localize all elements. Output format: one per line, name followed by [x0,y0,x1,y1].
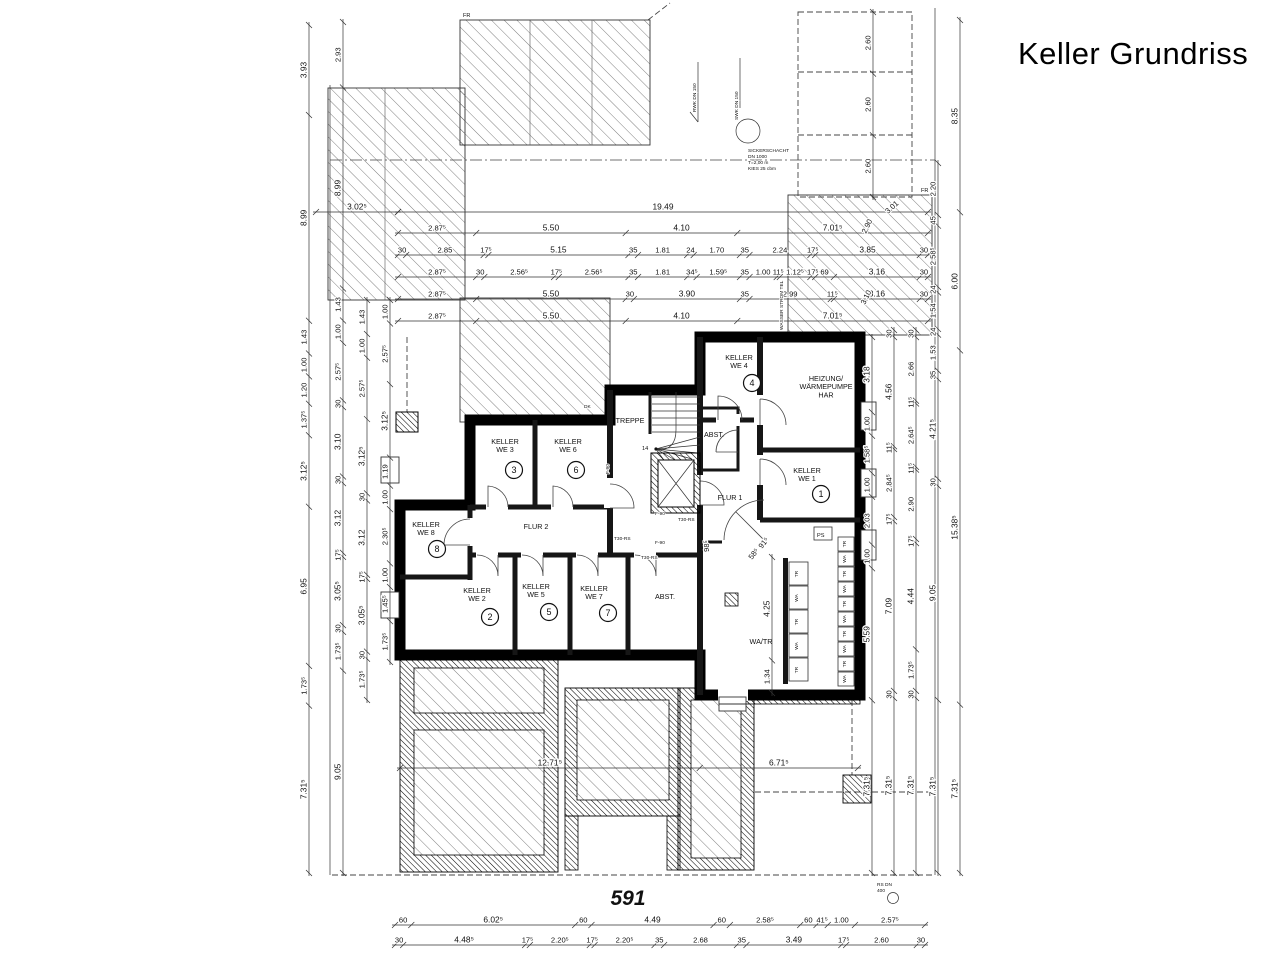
dim-value: 24 [929,285,938,293]
dim-value: 9.05 [928,584,938,601]
dim-chain-g1: 2.602.602.60 [864,9,877,200]
dim-chain-r3: 302.6611⁵2.64⁵11⁵2.9017⁵4.441.73⁵307.31⁵ [906,327,920,876]
dim-value: 4.48⁵ [454,935,474,945]
dim-chain-b1: 606.02⁵604.49602.58⁵6041⁵1.002.57⁵ [392,915,928,929]
room-name: WA/TR [750,637,773,646]
dim-value: 3.12⁵ [380,411,390,431]
dim-value: 17⁵ [358,571,367,583]
dim-value: 1.00 [334,324,343,339]
dim-value: 4.44 [906,588,916,605]
room-name: FLUR 1 [718,493,743,502]
dim-value: 1.00 [381,568,390,583]
dim-value: 2.87⁵ [428,290,446,299]
room-number: 8 [434,544,439,554]
dim-value: 5.15 [550,245,567,255]
floor-plan-page: Keller Grundriss [0,0,1280,960]
dim-value: 8.99 [299,209,309,226]
dim-value: 1.00 [358,339,367,354]
dim-value: 2.20⁵ [551,936,569,945]
dim-value: 6.95 [299,578,309,595]
dim-value: 3.05⁵ [357,605,367,625]
dim-value: 1.53 [929,345,938,360]
dim-value: 30 [885,690,894,698]
dim-value: 2.20 [929,182,938,197]
dim-value: 2.90 [907,497,916,512]
dim-value: 30 [626,290,634,299]
dim-value: 17⁵ [838,936,850,945]
dim-value: 3.02⁵ [347,202,367,212]
drawing-title: Keller Grundriss [1018,36,1248,72]
soakaway-note-3: T=2,00 m [748,160,768,166]
dim-value: 1.45⁵ [381,595,390,613]
dim-value: 30 [920,246,928,255]
dim-value: 4.10 [673,311,690,321]
dim-value: 11⁵ [773,268,784,277]
room-label-watr: WA/TR [750,637,773,646]
room-number: 4 [749,378,754,388]
dim-value: 7.31⁵ [906,776,916,796]
f90-label-1: F-90 [655,511,665,517]
dim-value: 4.21⁵ [928,419,938,439]
room-name: FLUR 2 [524,522,549,531]
dim-value: 1.00 [863,478,872,493]
dim-value: 69 [820,268,828,277]
room-label-flur2: FLUR 2 [524,522,549,531]
ps-label: PS [817,533,825,539]
dim-value: 11⁵ [907,463,916,474]
room-number: 5 [546,607,551,617]
washer-bay-label: TR [794,618,800,625]
sewer-soakaway [690,58,760,143]
dim-value: 17⁵ [885,513,894,525]
dim-value: 30 [476,268,484,277]
dim-value: 1.70 [709,246,724,255]
dim-value: 30 [358,493,367,501]
dim-value: 5.50 [543,223,560,233]
room-name: ABST. [655,592,675,601]
dim-value: 2.57⁵ [358,379,367,397]
dim-value: 6.71⁵ [769,758,789,768]
f90-label-3: F-90 [605,464,611,474]
dim-value: 1.34 [763,669,772,684]
dim-value: 35 [629,246,637,255]
dim-value: 3.12⁵ [299,461,309,481]
fr-label-right: FR [921,188,928,194]
dim-value: 2.57⁵ [334,363,343,381]
dim-value: 17⁵ [586,936,598,945]
dim-value: 1.00 [834,916,849,925]
dim-value: 3.10 [333,433,343,450]
dim-value: 17⁵ [551,268,563,277]
dim-value: 1.19 [381,464,390,479]
dim-value: 30 [907,329,916,337]
dim-value: 30 [358,651,367,659]
dim-value: 1.00 [381,304,390,319]
floor-plan-drawing: TRWATRWATRWATRWATRWATRWATRWATR 3.02⁵19.4… [0,0,1280,960]
dim-value: 17⁵ [807,268,819,277]
dim-value: 7.31⁵ [884,776,894,796]
dim-value: 2.03 [863,513,872,528]
garage-outline-dashed [798,12,912,197]
dim-value: 1.73⁵ [907,661,916,679]
elevator-shaft [651,453,700,513]
dim-value: 6.02⁵ [483,915,503,925]
room-number: 6 [573,465,578,475]
soakaway-note-1: SICKERSCHACHT [748,148,789,154]
dim-value: 35 [740,246,748,255]
dim-value: 17⁵ [334,549,343,561]
rsdn-circle [888,893,899,904]
dim-chain-b2: 304.48⁵17⁵2.20⁵17⁵2.20⁵352.68353.4917⁵2.… [392,935,928,949]
dim-value: 3.49 [786,935,803,945]
dim-value: 2.57⁵ [881,916,899,925]
dim-value: 4.10 [673,223,690,233]
dim-value: 2.57⁵ [381,345,390,363]
dim-value: 1.43 [334,297,343,312]
dim-value: 17⁵ [807,246,819,255]
dim-value: 3.12 [333,510,343,527]
dim-value: 2.30⁵ [381,527,390,545]
dim-value: 30 [907,690,916,698]
room-number: 7 [605,608,610,618]
dim-value: 1.73⁵ [358,670,367,688]
dim-value: 1.00 [756,268,771,277]
dim-value: 3.93 [299,61,309,78]
dim-value: 24 [686,246,694,255]
dim-chain-lc: 1.431.002.57⁵3.12⁵303.1217⁵3.05⁵301.73⁵ [357,297,371,703]
dim-value: 2.87⁵ [428,268,446,277]
soakaway-note-4: KIES 25 cbm [748,166,776,172]
dim-value: 2.56⁵ [585,268,603,277]
dim-value: 45 [929,216,938,224]
dim-value: 11⁵ [885,442,894,453]
dim-value: 30 [334,624,343,632]
dim-value: 30 [398,246,406,255]
dim-value: 60 [804,916,812,925]
washer-bay-label: TR [842,540,848,547]
dim-value: 3.12⁵ [357,446,367,466]
washer-bay-label: TR [842,630,848,637]
utilities-label: WASSER STROM TEL [779,280,785,330]
washer-bay-label: TR [842,660,848,667]
dim-value: 17⁵ [522,936,534,945]
dim-value: 5.50 [543,289,560,299]
floor-drain-box [725,593,738,606]
t30rs-label-2: T30-RS [614,536,631,542]
room-name: ABST. [704,430,724,439]
dim-value: 2.60 [864,35,873,50]
dim-value: 3.18 [862,366,872,383]
dim-value: 19.49 [653,202,674,212]
washer-bay-label: TR [842,570,848,577]
dim-value: 6.00 [950,273,960,290]
dim-value: 1.81 [655,246,670,255]
dim-value: 4.25 [762,600,772,617]
dim-value: 7.31⁵ [862,777,872,797]
dim-value: 12.71⁵ [538,758,562,768]
soakaway-note-2: DN 1000 [748,154,767,160]
dim-value: 5.50 [543,311,560,321]
washer-bay-label: WA [794,593,800,601]
dim-value: 1.59⁵ [709,268,727,277]
dim-value: 24 [929,328,938,336]
dk-label: DK [584,404,591,410]
dim-value: 1.58⁵ [863,445,872,463]
dim-value: 30 [920,268,928,277]
dim-value: 4.56 [884,383,894,400]
building: TRWATRWATRWATRWATRWATRWATRWATR [381,337,876,711]
dim-value: 2.60 [874,936,889,945]
dim-value: 2.66 [907,362,916,377]
dim-value: 2.20⁵ [616,936,634,945]
dim-value: 60 [579,916,587,925]
dim-value: 35 [737,936,745,945]
room-label-flur1: FLUR 1 [718,493,743,502]
dim-value: 35 [741,268,749,277]
dim-value: 7.01⁵ [823,311,843,321]
dim-value: 30 [395,936,403,945]
dim-value: 2.56⁵ [510,268,528,277]
dim-value: 2.87⁵ [428,312,446,321]
room-label-abst1: ABST. [655,592,675,601]
dim-value: 8.99 [333,180,343,197]
dim-value: 35 [740,290,748,299]
dim-value: 2.87⁵ [428,224,446,233]
dim-value: 41⁵ [816,916,828,925]
dim-value: 1.73⁵ [381,633,390,651]
t30rs-label-3: T30-RS [641,555,658,561]
dim-value: 7.01⁵ [823,223,843,233]
dim-value: 1.43 [300,330,309,345]
stair-count-label: 14 [642,446,648,452]
plot-number: 591 [610,887,645,910]
dim-value: 15.38⁵ [950,515,960,539]
dim-value: 7.09 [884,598,894,615]
dim-chain-r2: 304.5611⁵2.84⁵17⁵7.09307.31⁵ [884,327,898,876]
door-dim-98: 98⁵ [702,540,711,552]
dim-value: 30 [920,290,928,299]
dim-value: 2.64⁵ [907,426,916,444]
washer-bay-label: WA [842,644,848,652]
soakaway-circle [736,119,760,143]
dim-value: 3.05⁵ [333,581,343,601]
washer-bay-label: WA [842,674,848,682]
dim-value: 3.16 [869,267,886,277]
dim-value: 1.54 [929,303,938,318]
f90-label-2: F-90 [655,540,665,546]
dim-value: 17⁵ [480,246,492,255]
room-label-abst2: ABST. [704,430,724,439]
dim-value: 2.60 [864,97,873,112]
washer-bay-label: WA [842,614,848,622]
dim-value: 1.81 [655,268,670,277]
dim-value: 35 [929,371,938,379]
rsdn-label-1: RS DN [877,882,892,888]
dim-value: 30 [334,476,343,484]
dim-value: 1.00 [863,549,872,564]
dim-chain-r5: 8.356.0015.38⁵7.31⁵ [950,17,964,876]
washer-bay-label: TR [794,570,800,577]
washer-bay-label: WA [842,554,848,562]
room-number: 1 [818,489,823,499]
dim-value: 8.35 [950,108,960,125]
rwk-label: RWK DN 150 [692,83,698,112]
dim-value: 30 [917,936,925,945]
dim-value: 2.85 [438,246,453,255]
dim-value: 2.58⁵ [756,916,774,925]
room-number: 3 [511,465,516,475]
dim-value: 60 [399,916,407,925]
dim-value: 7.31⁵ [928,777,938,797]
dim-value: 35 [655,936,663,945]
dim-value: 3.12 [357,529,367,546]
dim-value: 5.59 [862,626,872,643]
dim-value: 2.93 [334,47,343,62]
dim-value: 30 [334,400,343,408]
dim-value: 2.84⁵ [885,474,894,492]
dim-value: 1.73⁵ [334,642,343,660]
dim-value: 1.73⁵ [300,677,309,695]
room-name: TREPPE [616,416,645,425]
dim-value: 11⁵ [827,290,838,299]
dim-value: 7.31⁵ [950,779,960,799]
dim-value: 35 [629,268,637,277]
dim-chain-la: 3.938.991.431.001.201.37⁵3.12⁵6.951.73⁵7… [299,22,313,876]
dim-value: 3.90 [679,289,696,299]
dim-value: 9.05 [333,763,343,780]
dim-value: 30 [885,329,894,337]
dim-value: 2.60 [864,159,873,174]
dim-value: 3.85 [859,245,876,255]
dim-value: 4.49 [644,915,661,925]
washer-bay-label: TR [842,600,848,607]
dim-value: 2.68 [693,936,708,945]
dim-value: 1.00 [300,357,309,372]
dim-value: 17⁵ [907,535,916,547]
washer-bay-label: TR [794,666,800,673]
fr-label-top: FR [463,13,470,19]
rsdn-label-2: 400 [877,888,885,894]
dim-value: 2.24 [773,246,788,255]
dim-value: 60 [718,916,726,925]
dim-value: 1.37⁵ [300,411,309,429]
dim-value: 30 [929,478,938,486]
washer-bay-label: WA [842,584,848,592]
swk-label: SWK DN 150 [734,91,740,120]
dim-value: 7.31⁵ [299,779,309,799]
room-number: 2 [487,612,492,622]
dim-value: 34⁵ [686,268,698,277]
dim-value: 11⁵ [907,397,916,408]
dim-value: 1.12⁵ [786,268,804,277]
dim-value: 1.00 [381,490,390,505]
t30rs-label-1: T30-RS [678,517,695,523]
room-label-treppe: TREPPE [616,416,645,425]
dim-value: 1.20 [300,383,309,398]
dim-value: 1.00 [863,417,872,432]
dim-value: 1.43 [358,310,367,325]
dim-value: 2.58⁵ [929,247,938,265]
washer-bay-label: WA [794,641,800,649]
